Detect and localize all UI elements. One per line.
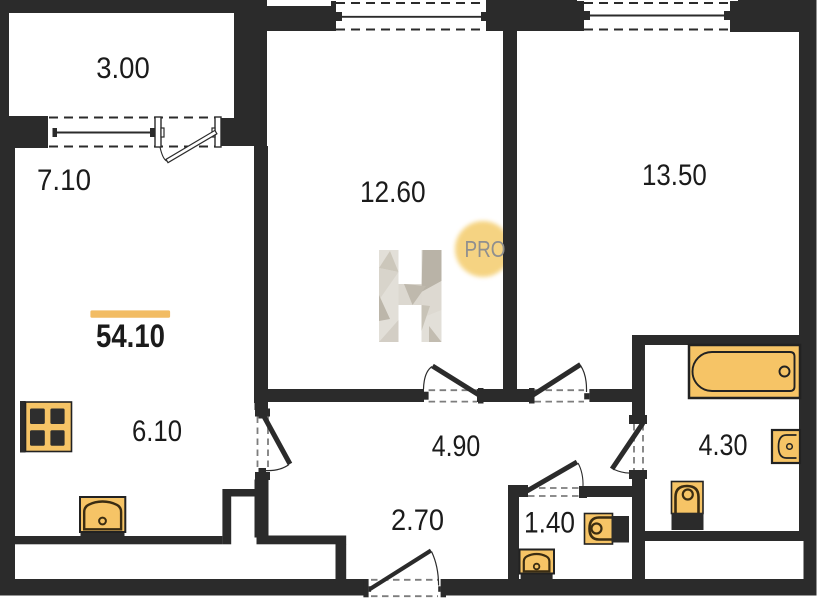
svg-text:54.10: 54.10: [96, 318, 165, 354]
svg-text:2.70: 2.70: [391, 504, 444, 537]
svg-text:4.90: 4.90: [432, 430, 481, 463]
svg-text:4.30: 4.30: [699, 429, 748, 462]
svg-text:3.00: 3.00: [96, 52, 150, 85]
svg-text:6.10: 6.10: [132, 415, 182, 448]
svg-text:13.50: 13.50: [642, 159, 707, 192]
svg-text:12.60: 12.60: [360, 176, 426, 209]
svg-text:1.40: 1.40: [524, 507, 575, 540]
svg-text:7.10: 7.10: [37, 164, 91, 197]
svg-text:PRO: PRO: [465, 236, 506, 262]
